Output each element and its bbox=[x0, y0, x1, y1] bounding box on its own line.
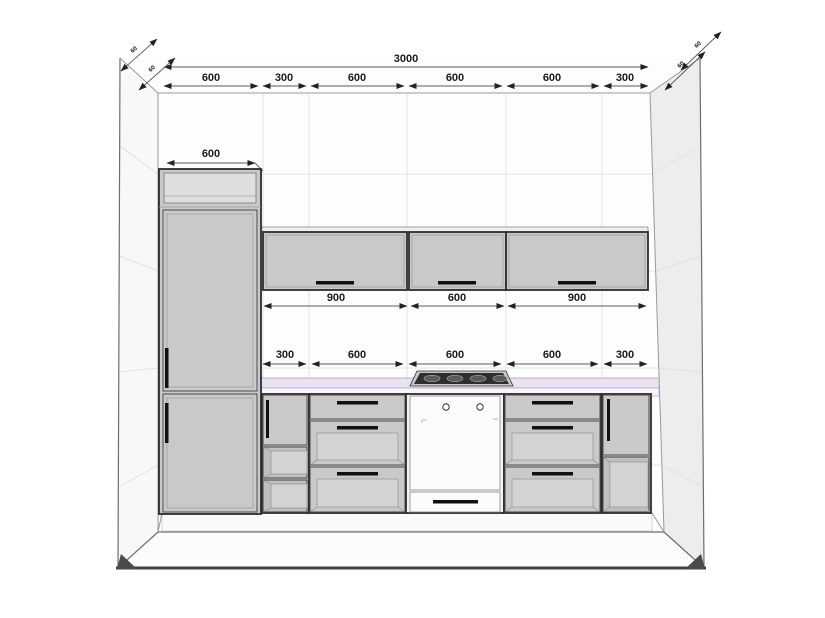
base-cabinet-open-left[interactable] bbox=[262, 394, 309, 513]
wall-cabinet-3[interactable] bbox=[506, 232, 648, 290]
tall-cabinet[interactable] bbox=[159, 169, 261, 514]
burner bbox=[493, 375, 507, 381]
base-drawer-unit-left[interactable] bbox=[309, 394, 406, 513]
floor bbox=[118, 532, 704, 568]
oven-unit[interactable] bbox=[406, 394, 504, 513]
left-wall bbox=[118, 58, 158, 568]
dim-label: 600 bbox=[202, 148, 220, 160]
gas-cooktop[interactable] bbox=[410, 371, 513, 386]
wall-cabinet-1[interactable] bbox=[263, 232, 407, 290]
dim-label: 300 bbox=[616, 349, 634, 361]
dim-label: 600 bbox=[446, 72, 464, 84]
dim-label: 600 bbox=[202, 72, 220, 84]
dim-label: 300 bbox=[616, 72, 634, 84]
oven-knob[interactable] bbox=[443, 404, 449, 410]
dim-label: 300 bbox=[276, 349, 294, 361]
dim-label: 60 bbox=[694, 40, 703, 49]
burner bbox=[424, 375, 440, 381]
dim-label: 600 bbox=[543, 72, 561, 84]
door-handle[interactable] bbox=[316, 281, 354, 285]
burner bbox=[470, 375, 486, 381]
door-handle[interactable] bbox=[438, 281, 476, 285]
base-drawer-unit-right[interactable] bbox=[504, 394, 601, 513]
base-cabinet-open-right[interactable] bbox=[602, 394, 651, 513]
drawer-handle[interactable] bbox=[532, 472, 573, 476]
dim-label: 60 bbox=[130, 45, 139, 54]
drawer-handle[interactable] bbox=[337, 401, 378, 405]
dim-label: 600 bbox=[448, 292, 466, 304]
drawer-handle[interactable] bbox=[532, 426, 573, 430]
door-handle[interactable] bbox=[266, 400, 269, 438]
dim-label-total: 3000 bbox=[394, 53, 418, 65]
dim-label: 900 bbox=[327, 292, 345, 304]
drawer-handle[interactable] bbox=[337, 472, 378, 476]
dim-label: 600 bbox=[543, 349, 561, 361]
door-handle[interactable] bbox=[165, 403, 169, 443]
door-handle[interactable] bbox=[607, 399, 610, 441]
dim-label: 300 bbox=[275, 72, 293, 84]
door-handle[interactable] bbox=[558, 281, 596, 285]
dim-label: 600 bbox=[446, 349, 464, 361]
door-handle[interactable] bbox=[165, 348, 169, 388]
drawer-handle[interactable] bbox=[337, 426, 378, 430]
drawer-handle[interactable] bbox=[433, 500, 478, 504]
burner bbox=[447, 375, 463, 381]
plinth bbox=[158, 513, 664, 532]
dim-label: 900 bbox=[568, 292, 586, 304]
dim-label: 600 bbox=[348, 349, 366, 361]
kitchen-elevation-canvas: 3000 600 300 600 600 600 300 60 60 60 60… bbox=[0, 0, 825, 618]
dim-label: 600 bbox=[348, 72, 366, 84]
wall-cabinet-2[interactable] bbox=[409, 232, 506, 290]
wall-cabinets bbox=[262, 227, 648, 290]
drawer-handle[interactable] bbox=[532, 401, 573, 405]
oven-knob[interactable] bbox=[477, 404, 483, 410]
